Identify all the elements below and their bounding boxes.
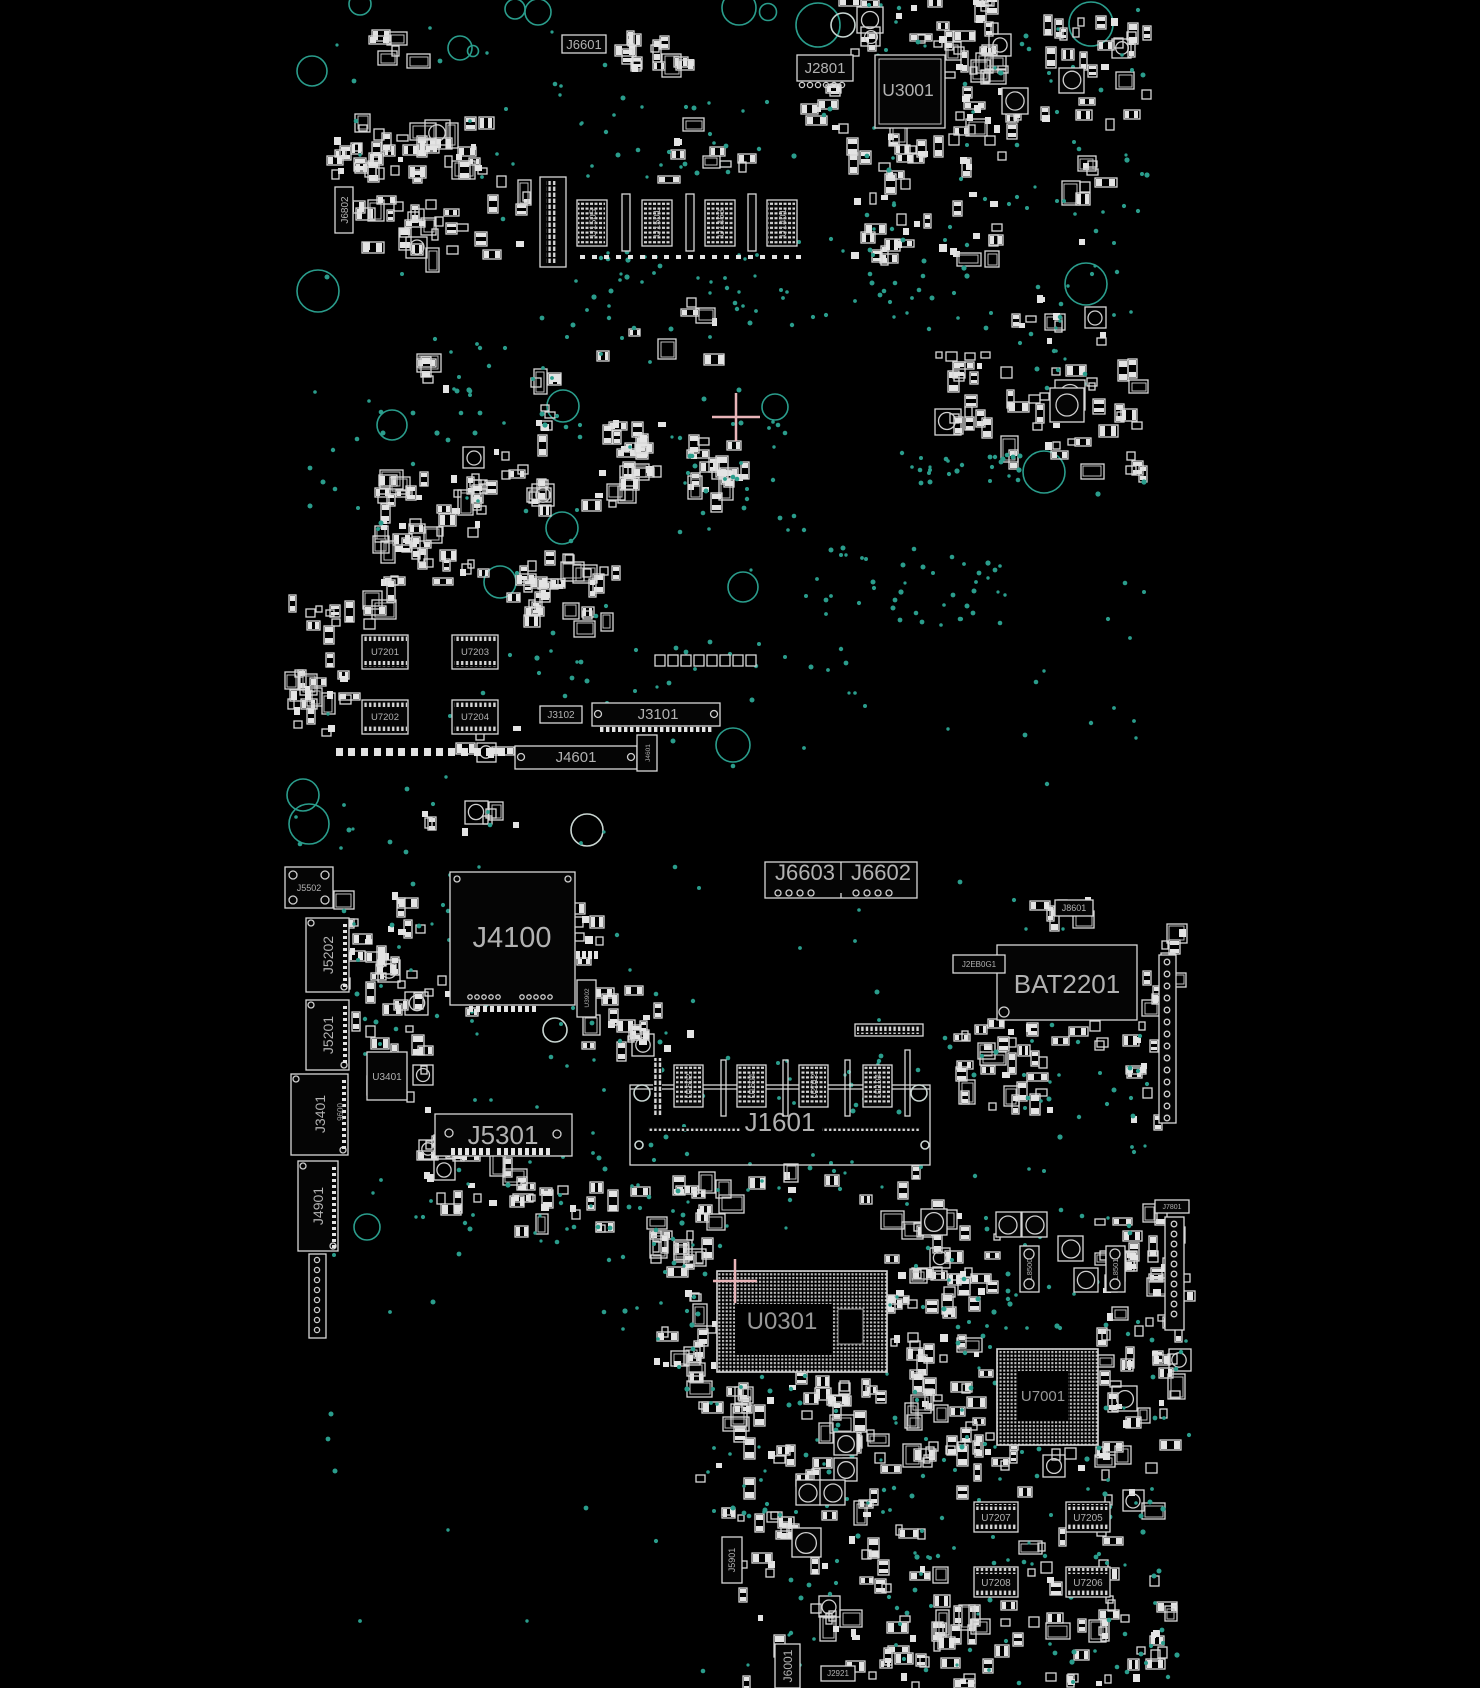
- svg-text:J8601: J8601: [1062, 903, 1087, 913]
- svg-text:U7207: U7207: [981, 1513, 1011, 1524]
- svg-text:J2EB0G1: J2EB0G1: [962, 960, 997, 969]
- svg-text:9600: 9600: [336, 1103, 345, 1121]
- svg-text:J2801: J2801: [805, 60, 846, 77]
- svg-text:U1463: U1463: [716, 209, 727, 237]
- svg-text:U7202: U7202: [371, 712, 399, 723]
- svg-text:U1604: U1604: [747, 1073, 757, 1098]
- svg-text:U3902: U3902: [584, 988, 591, 1008]
- svg-text:U1401: U1401: [778, 209, 789, 237]
- svg-text:J4601: J4601: [556, 749, 597, 766]
- svg-text:J5201: J5201: [320, 1016, 336, 1054]
- svg-text:L8500: L8500: [1025, 1259, 1034, 1280]
- svg-text:J7801: J7801: [1162, 1204, 1181, 1211]
- svg-text:U7203: U7203: [461, 647, 489, 658]
- svg-text:J4901: J4901: [310, 1187, 326, 1225]
- svg-text:U7206: U7206: [1073, 1578, 1103, 1589]
- svg-text:J5901: J5901: [727, 1548, 737, 1573]
- svg-text:J6601: J6601: [566, 37, 601, 52]
- svg-text:J5301: J5301: [468, 1120, 539, 1150]
- svg-text:L8501: L8501: [1111, 1259, 1120, 1280]
- svg-text:J3101: J3101: [638, 706, 679, 723]
- svg-text:J2921: J2921: [827, 1669, 849, 1678]
- svg-text:J6802: J6802: [340, 196, 351, 224]
- svg-text:J6602: J6602: [851, 860, 911, 885]
- svg-text:U3001: U3001: [882, 80, 934, 100]
- svg-text:U0301: U0301: [747, 1308, 818, 1335]
- svg-text:U7204: U7204: [461, 712, 489, 723]
- svg-text:U3401: U3401: [372, 1072, 402, 1083]
- svg-text:J3401: J3401: [312, 1095, 328, 1133]
- svg-text:J6001: J6001: [781, 1649, 795, 1682]
- svg-text:J4601: J4601: [645, 744, 652, 762]
- svg-text:U2012: U2012: [809, 1073, 819, 1098]
- svg-text:J3102: J3102: [547, 710, 575, 721]
- svg-text:U1505: U1505: [588, 209, 599, 237]
- svg-text:J5202: J5202: [320, 936, 336, 974]
- svg-text:BAT2201: BAT2201: [1014, 969, 1120, 999]
- svg-text:U7208: U7208: [981, 1578, 1011, 1589]
- svg-text:U1104: U1104: [873, 1074, 883, 1099]
- svg-text:U1602: U1602: [684, 1073, 694, 1098]
- svg-text:J1601: J1601: [745, 1107, 816, 1137]
- svg-text:J5502: J5502: [297, 883, 322, 893]
- svg-text:U7205: U7205: [1073, 1513, 1103, 1524]
- svg-text:J6603: J6603: [775, 860, 835, 885]
- svg-text:U7201: U7201: [371, 647, 399, 658]
- svg-text:U7001: U7001: [1021, 1388, 1065, 1405]
- svg-text:J4100: J4100: [472, 922, 551, 954]
- svg-text:U1501: U1501: [652, 209, 663, 237]
